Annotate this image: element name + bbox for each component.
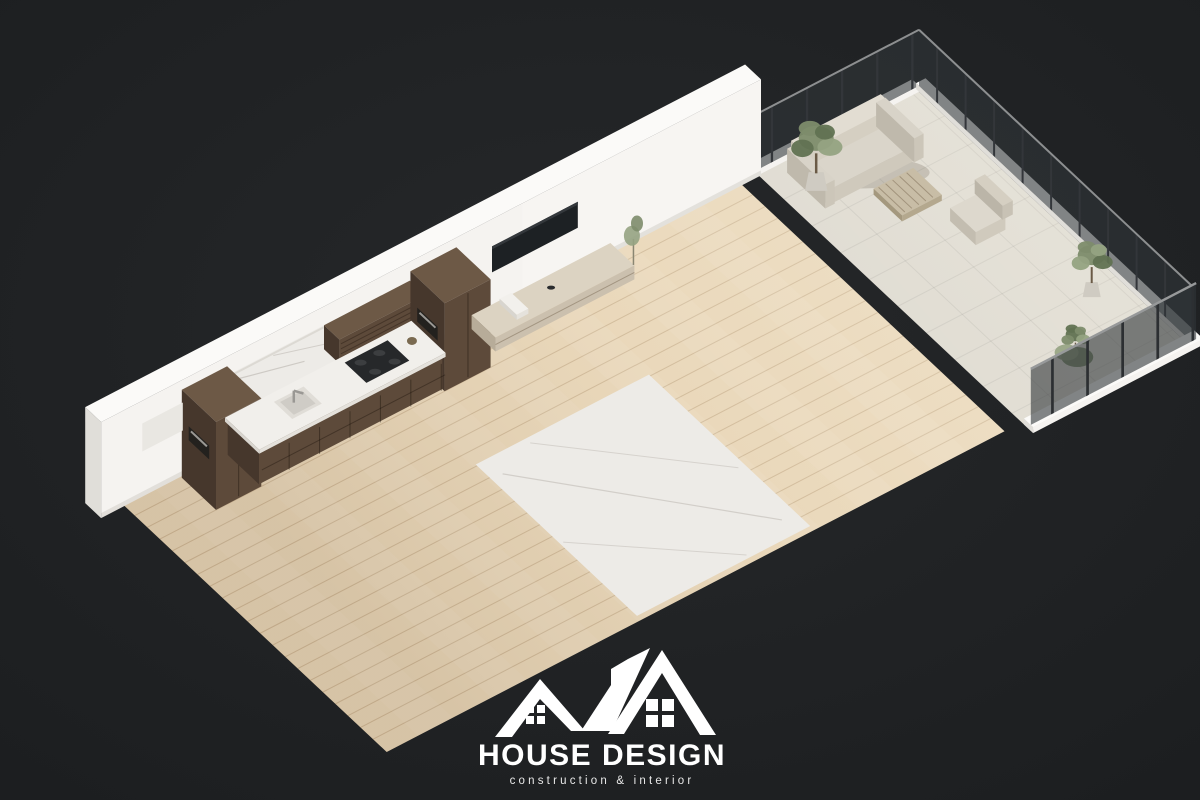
logo-subtitle: construction & interior [510, 775, 695, 787]
apartment-3d-render: HOUSE DESIGN construction & interior [0, 0, 1200, 800]
floorplan-scene: HOUSE DESIGN construction & interior [0, 0, 1200, 800]
logo-title: HOUSE DESIGN [478, 739, 726, 772]
